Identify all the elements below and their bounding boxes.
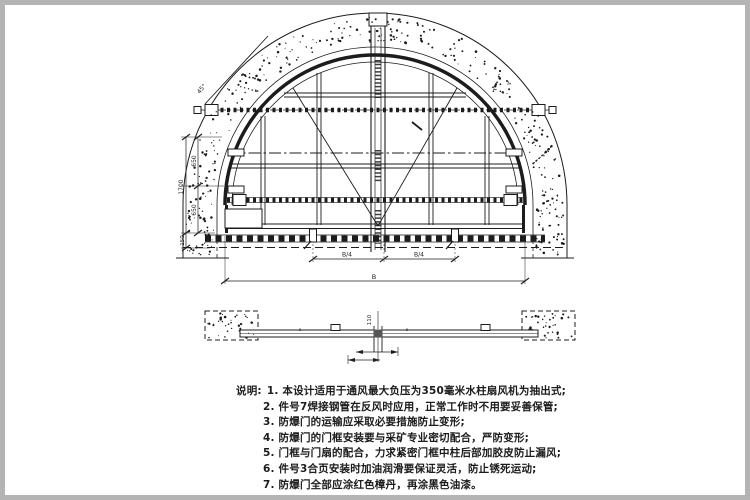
dim-quarter-right-label: B/4 — [414, 252, 424, 259]
note-item: 3. 防爆门的运输应采取必要措施防止变形; — [263, 415, 726, 431]
note-item: 2. 件号7焊接钢管在反风时应用，正常工作时不用要妥善保管; — [263, 400, 726, 416]
notes-block: 说明:1. 本设计适用于通风最大负压为350毫米水柱扇风机为抽出式; 2. 件号… — [236, 384, 726, 493]
dim-plan-centre-label: 110 — [367, 314, 373, 325]
dim-quarter-left-label: B/4 — [342, 252, 352, 259]
note-item: 6. 件号3合页安装时加油润滑要保证灵活，防止锈死运动; — [263, 462, 726, 478]
plan-door-slab — [240, 325, 538, 338]
dim-angle-label: 45° — [196, 83, 208, 96]
dim-total-width-label: B — [372, 273, 376, 281]
right-pier — [521, 205, 574, 258]
note-line: 说明:1. 本设计适用于通风最大负压为350毫米水柱扇风机为抽出式; — [236, 384, 726, 400]
dim-seg-lower-label: 650 — [191, 204, 198, 216]
dim-seg-upper-label: 650 — [191, 155, 198, 167]
dim-base-label: 150 — [180, 235, 186, 246]
dim-total-height-label: 1700 — [178, 179, 185, 194]
scanned-drawing-page: 1700 650 650 150 45° B/4 B/4 B — [0, 0, 750, 500]
plan-view: 110 — [205, 311, 575, 364]
note-item: 7. 防爆门全部应涂红色樟丹，再涂黑色油漆。 — [263, 478, 726, 494]
notes-label: 说明: — [236, 385, 262, 397]
note-item: 4. 防爆门的门框安装要与采矿专业密切配合，严防变形; — [263, 431, 726, 447]
note-item: 1. 本设计适用于通风最大负压为350毫米水柱扇风机为抽出式; — [267, 385, 566, 397]
left-step-block — [225, 209, 262, 228]
elevation-view: 1700 650 650 150 45° B/4 B/4 B — [176, 13, 574, 284]
angle-reference-line — [205, 36, 268, 104]
note-item: 5. 门框与门扇的配合，力求紧密门框中柱后部加胶皮防止漏风; — [263, 446, 726, 462]
